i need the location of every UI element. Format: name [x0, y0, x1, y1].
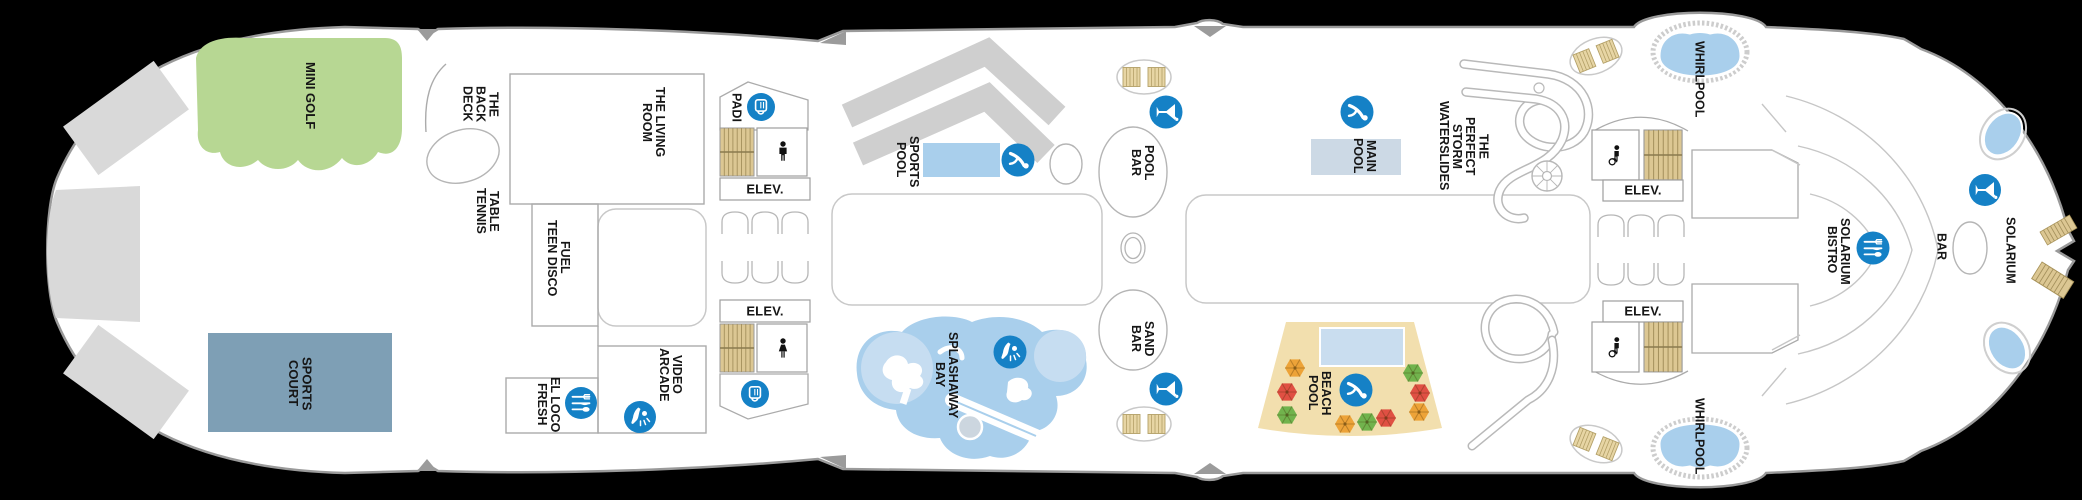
deck-plan: MINI GOLF SPORTSCOURT THEBACKDECK TABLET… — [0, 0, 2082, 500]
label-video-arcade: VIDEOARCADE — [657, 348, 683, 400]
solarium-room — [1692, 150, 1798, 218]
pool-icon — [1340, 374, 1373, 407]
label-elev-fwd-bottom: ELEV. — [1624, 304, 1661, 319]
seating-arch — [1658, 215, 1684, 237]
label-whirlpool-top: WHIRLPOOL — [1692, 41, 1705, 113]
label-living-room: THE LIVINGROOM — [640, 86, 666, 158]
label-fuel-teen-disco: FUELTEEN DISCO — [545, 220, 571, 294]
mini-golf-green — [196, 38, 402, 171]
stairs-icon — [720, 128, 754, 176]
sports-pool-water — [922, 142, 1001, 178]
seating-arch — [782, 261, 808, 283]
label-back-deck: THEBACKDECK — [460, 85, 499, 123]
label-elev-fwd-top: ELEV. — [1624, 183, 1661, 198]
water-play-icon — [624, 401, 656, 433]
martini-icon — [1969, 174, 2001, 206]
water-play-icon — [994, 336, 1027, 369]
seating-arch — [1598, 263, 1624, 285]
seating-arch — [722, 261, 748, 283]
label-main-pool: MAINPOOL — [1351, 137, 1377, 175]
label-sand-bar: SANDBAR — [1129, 321, 1155, 357]
beach-pool-water — [1320, 328, 1404, 366]
seating-arch — [1628, 215, 1654, 237]
label-splashaway-bay: SPLASHAWAYBAY — [933, 332, 959, 418]
stairs-icon — [1644, 322, 1682, 372]
shop-icon — [747, 93, 775, 121]
label-bar: BAR — [1934, 233, 1947, 261]
label-elev-aft-bottom: ELEV. — [746, 304, 783, 319]
seating-arch — [1598, 215, 1624, 237]
seating-arch — [752, 212, 778, 234]
label-pool-bar: POOLBAR — [1129, 145, 1155, 181]
label-sports-pool: SPORTSPOOL — [894, 136, 920, 184]
solarium-room — [1692, 284, 1798, 353]
pool-icon — [1341, 96, 1374, 129]
label-perfect-storm-waterslides: THEPERFECT STORMWATERSLIDES — [1437, 100, 1490, 192]
pool-icon — [1002, 144, 1035, 177]
bow-bar-counter — [1953, 222, 1987, 274]
spiral-stairs-icon — [1532, 161, 1562, 191]
seating-arch — [722, 212, 748, 234]
shop-icon — [741, 380, 769, 408]
dining-icon — [1857, 232, 1890, 265]
seating-arch — [1658, 263, 1684, 285]
label-solarium-bistro: SOLARIUMBISTRO — [1825, 218, 1851, 282]
martini-icon — [1150, 373, 1183, 406]
label-solarium: SOLARIUM — [2003, 217, 2016, 283]
stairs-icon — [1644, 130, 1682, 180]
label-padi: PADI — [729, 90, 742, 124]
label-sports-court: SPORTSCOURT — [286, 357, 313, 409]
stairs-icon — [720, 324, 754, 372]
seating-arch — [782, 212, 808, 234]
label-beach-pool: BEACHPOOL — [1306, 371, 1332, 415]
seating-arch — [752, 261, 778, 283]
label-mini-golf: MINI GOLF — [303, 58, 317, 134]
label-el-loco-fresh: EL LOCOFRESH — [535, 377, 561, 431]
label-elev-aft-top: ELEV. — [746, 182, 783, 197]
dining-icon — [565, 387, 597, 419]
label-table-tennis: TABLETENNIS — [474, 187, 500, 235]
seating-arch — [1628, 263, 1654, 285]
label-whirlpool-bottom: WHIRLPOOL — [1692, 398, 1705, 470]
martini-icon — [1150, 96, 1183, 129]
